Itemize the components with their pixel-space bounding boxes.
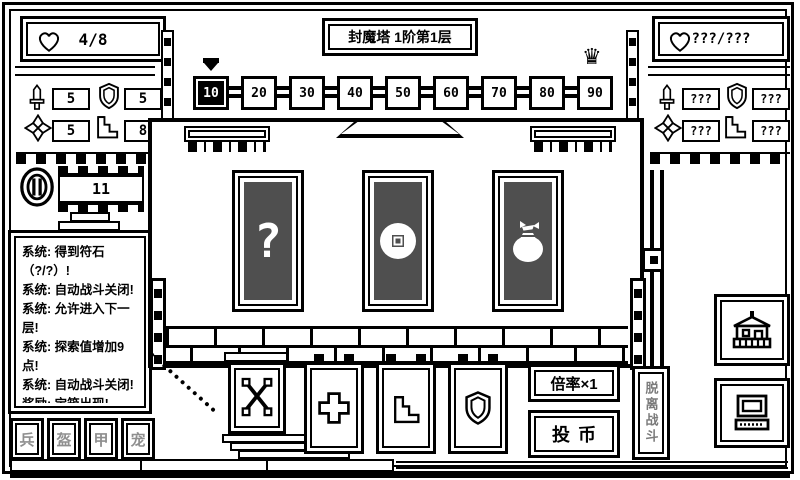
crenellation-strip: [16, 152, 154, 164]
log-line: 系统: 得到符石（?/?）!: [22, 243, 138, 281]
sword-icon: [656, 84, 678, 112]
floor-node-60[interactable]: 60: [433, 76, 469, 110]
boot-plaque[interactable]: [376, 362, 436, 454]
player-luck-value: 5: [52, 120, 90, 142]
floor-node-70[interactable]: 70: [481, 76, 517, 110]
clover-icon: [24, 114, 52, 142]
player-attack-value: 5: [52, 88, 90, 110]
boot-icon: [389, 391, 423, 425]
player-coins-bar: 11: [58, 175, 144, 203]
sword-icon: [26, 84, 48, 112]
crossed-swords-sign[interactable]: [228, 362, 286, 434]
house-icon: [730, 309, 774, 351]
enemy-defense-value: ???: [752, 88, 790, 110]
bottom-line: [396, 461, 788, 463]
log-line: 奖励: 宝箱出现!: [22, 395, 138, 403]
tab-helmet[interactable]: 盔: [47, 418, 81, 460]
heart-icon: [667, 29, 693, 53]
panel-divider: [15, 66, 155, 76]
tab-helmet-label: 盔: [52, 423, 76, 455]
boot-icon: [722, 112, 748, 140]
crenellation-strip: [58, 203, 144, 212]
tab-pet-label: 宠: [126, 423, 150, 455]
leave-battle-label: 脱离战斗: [642, 381, 661, 445]
plus-icon: [316, 390, 352, 426]
segment-divider: [140, 461, 142, 470]
crenellation-strip: [58, 166, 144, 175]
wall-bracket-right: [530, 126, 616, 142]
room-pillar-right: [630, 278, 646, 370]
coin-icon: [18, 166, 56, 208]
shield-plaque[interactable]: [448, 362, 508, 454]
multiplier-label: 倍率×1: [550, 373, 597, 394]
tab-armor[interactable]: 甲: [84, 418, 118, 460]
log-line: 系统: 自动战斗关闭!: [22, 281, 138, 300]
coin-card[interactable]: [362, 170, 434, 312]
mystery-card[interactable]: ?: [232, 170, 304, 312]
tab-soldier[interactable]: 兵: [10, 418, 44, 460]
crossed-swords-icon: [238, 376, 276, 420]
tab-pet[interactable]: 宠: [121, 418, 155, 460]
brick-wall-row: [166, 326, 628, 345]
heart-icon: [36, 29, 62, 53]
shield-icon: [96, 82, 122, 110]
health-plaque[interactable]: [304, 362, 364, 454]
multiplier-button[interactable]: 倍率×1: [528, 364, 620, 402]
wall-bracket-left: [184, 126, 270, 142]
enemy-attack-value: ???: [682, 88, 720, 110]
floor-node-90[interactable]: 90: [577, 76, 613, 110]
bottom-line: [396, 467, 788, 469]
bottom-black-bar: [10, 471, 790, 478]
enemy-luck-value: ???: [682, 120, 720, 142]
insert-coin-label: 投币: [544, 421, 604, 447]
floor-node-50[interactable]: 50: [385, 76, 421, 110]
crenellation-strip: [650, 152, 790, 164]
floor-node-30[interactable]: 30: [289, 76, 325, 110]
message-log-panel: 系统: 得到符石（?/?）! 系统: 自动战斗关闭! 系统: 允许进入下一层! …: [8, 230, 152, 414]
crown-icon: ♛: [582, 46, 602, 70]
computer-button[interactable]: [714, 378, 790, 448]
log-line: 系统: 自动战斗关闭!: [22, 376, 138, 395]
boot-icon: [94, 112, 120, 140]
floor-node-20[interactable]: 20: [241, 76, 277, 110]
moneybag-card[interactable]: [492, 170, 564, 312]
home-button[interactable]: [714, 294, 790, 366]
insert-coin-button[interactable]: 投币: [528, 410, 620, 458]
clover-icon: [654, 114, 682, 142]
wall-bracket-right-fringe: [534, 142, 612, 152]
tab-soldier-label: 兵: [15, 423, 39, 455]
shield-icon: [461, 390, 495, 426]
player-hp-box: 4/8: [20, 16, 166, 62]
floor-node-10[interactable]: 10: [193, 76, 229, 110]
message-log-content: 系统: 得到符石（?/?）! 系统: 自动战斗关闭! 系统: 允许进入下一层! …: [19, 241, 141, 403]
wall-bracket-left-fringe: [188, 142, 266, 152]
current-floor-marker-arrow: [204, 63, 218, 71]
leave-battle-sign[interactable]: 脱离战斗: [632, 366, 670, 460]
segment-divider: [266, 461, 268, 470]
computer-icon: [730, 393, 774, 433]
panel-divider: [648, 66, 790, 76]
player-defense-value: 5: [124, 88, 162, 110]
question-mark-icon: ?: [254, 214, 282, 268]
floor-node-80[interactable]: 80: [529, 76, 565, 110]
money-bag-icon: [506, 217, 550, 265]
title-plaque: 封魔塔 1阶第1层: [322, 18, 478, 56]
shield-icon: [724, 82, 750, 110]
skylight-decoration-inner: [341, 122, 459, 134]
log-line: 系统: 允许进入下一层!: [22, 300, 138, 338]
floor-node-40[interactable]: 40: [337, 76, 373, 110]
log-line: 系统: 探索值增加9点!: [22, 338, 138, 376]
page-title: 封魔塔 1阶第1层: [348, 27, 451, 47]
sign-stand-top: [224, 352, 288, 362]
tab-armor-label: 甲: [89, 423, 113, 455]
sign-post-box: [642, 248, 664, 272]
coin-hole-icon: [376, 219, 420, 263]
enemy-agility-value: ???: [752, 120, 790, 142]
enemy-hp-box: ???/???: [652, 16, 790, 62]
